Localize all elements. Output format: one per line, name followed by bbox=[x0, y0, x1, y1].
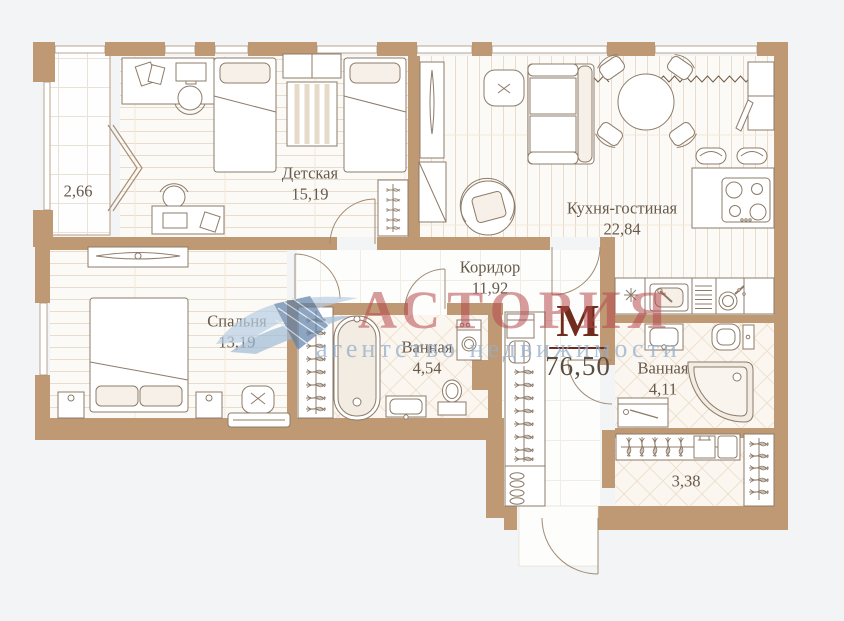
bedroom-bench bbox=[228, 413, 290, 427]
bedroom-closet bbox=[298, 307, 333, 418]
bedroom-window bbox=[40, 303, 47, 375]
folded-shirt-icon bbox=[694, 436, 715, 458]
nightstand-right bbox=[196, 392, 222, 418]
room-area: 4,54 bbox=[402, 358, 453, 379]
kids-rug bbox=[287, 82, 337, 146]
room-name: Ванная bbox=[402, 338, 453, 357]
hall-closet bbox=[505, 312, 545, 506]
apartment-type-marker: М bbox=[549, 298, 606, 349]
floor-plan-drawing bbox=[0, 0, 844, 621]
balcony-top-window bbox=[55, 46, 105, 53]
balcony-side-window bbox=[44, 82, 50, 210]
storage-box-icon bbox=[718, 436, 737, 458]
wardrobe-top-unit bbox=[616, 434, 740, 460]
room-name: Детская bbox=[282, 164, 338, 183]
room-label-wardrobe: 3,38 bbox=[672, 470, 701, 491]
room-name: Ванная bbox=[638, 359, 689, 378]
living-window-2 bbox=[492, 46, 607, 53]
room-name: Кухня-гостиная bbox=[567, 199, 677, 218]
kids-window-1 bbox=[165, 46, 195, 53]
room-area: 15,19 bbox=[282, 184, 338, 205]
room-label-living: Кухня-гостиная 22,84 bbox=[567, 198, 677, 241]
room-area: 22,84 bbox=[567, 219, 677, 240]
dining-table bbox=[618, 74, 674, 130]
living-ottoman bbox=[484, 70, 524, 106]
room-area: 11,92 bbox=[460, 278, 520, 299]
kids-bed-2 bbox=[344, 58, 406, 172]
room-area: 13,19 bbox=[207, 332, 266, 353]
kids-bed-1 bbox=[214, 58, 276, 172]
cooker-hood-icon bbox=[624, 288, 638, 302]
kitchen-counter bbox=[615, 278, 774, 314]
room-label-balcony: 2,66 bbox=[64, 180, 93, 201]
room-label-bath1: Ванная 4,54 bbox=[402, 337, 453, 380]
floor-plan-page: Детская 15,19 Кухня-гостиная 22,84 Спаль… bbox=[0, 0, 844, 621]
room-label-corridor: Коридор 11,92 bbox=[460, 257, 520, 300]
room-name: Коридор bbox=[460, 258, 520, 277]
bathtub bbox=[334, 316, 380, 420]
washing-machine-1 bbox=[457, 320, 481, 360]
room-area: 2,66 bbox=[64, 180, 93, 201]
bedroom-tv-console bbox=[88, 247, 188, 267]
media-wall bbox=[419, 62, 446, 222]
double-bed bbox=[90, 298, 188, 412]
kids-window-2 bbox=[215, 46, 248, 53]
wardrobe-side-unit bbox=[744, 434, 774, 506]
bath2-toilet bbox=[712, 324, 754, 350]
bedroom-ottoman bbox=[242, 386, 274, 413]
living-window-3 bbox=[655, 46, 757, 53]
room-area: 3,38 bbox=[672, 470, 701, 491]
balcony-floor bbox=[48, 48, 110, 235]
room-label-kids: Детская 15,19 bbox=[282, 163, 338, 206]
bath2-sink bbox=[645, 324, 683, 350]
sofa bbox=[528, 64, 594, 164]
nightstand-left bbox=[58, 392, 84, 418]
bath1-sink bbox=[386, 396, 426, 419]
living-window-1 bbox=[417, 46, 472, 53]
kitchen-island bbox=[692, 168, 774, 228]
kids-closet bbox=[378, 180, 408, 236]
room-area: 4,11 bbox=[638, 379, 689, 400]
total-area-marker: М 76,50 bbox=[545, 298, 611, 382]
room-name: Спальня bbox=[207, 312, 266, 331]
total-area-value: 76,50 bbox=[545, 351, 611, 382]
room-label-bath2: Ванная 4,11 bbox=[638, 358, 689, 401]
washing-machine-2 bbox=[618, 398, 668, 427]
kids-window-3 bbox=[317, 46, 377, 53]
kids-dresser bbox=[283, 54, 341, 78]
room-label-bedroom: Спальня 13,19 bbox=[207, 311, 266, 354]
